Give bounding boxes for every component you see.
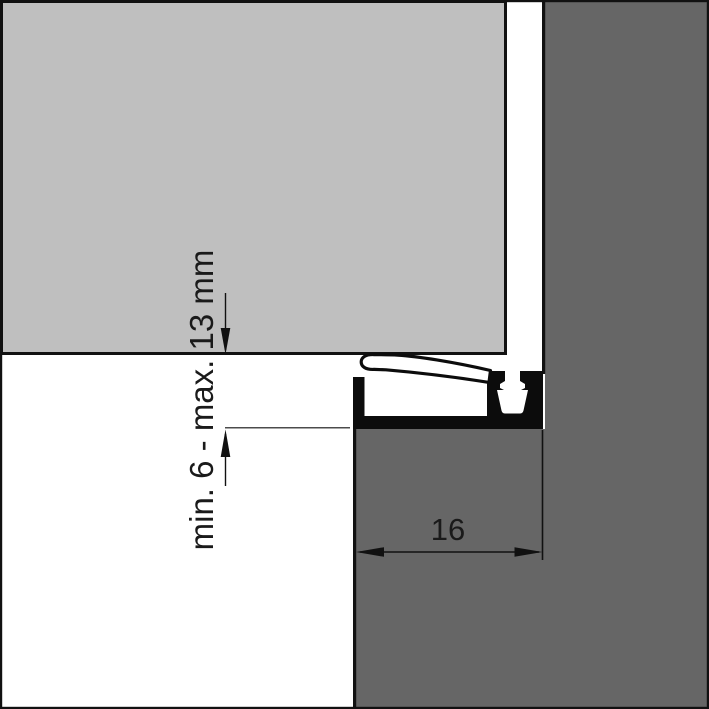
floor-step-edge-line <box>353 429 356 709</box>
wall-edge-line <box>542 0 545 374</box>
seal-cross-section-diagram: min. 6 - max. 13 mm 16 <box>0 0 709 709</box>
gap-dimension-label: min. 6 - max. 13 mm <box>183 250 220 551</box>
width-dimension-label: 16 <box>431 512 465 547</box>
profile-base <box>353 416 543 429</box>
door-panel <box>2 2 506 354</box>
technical-drawing-canvas: min. 6 - max. 13 mm 16 <box>0 0 709 709</box>
floor-section <box>356 429 709 709</box>
